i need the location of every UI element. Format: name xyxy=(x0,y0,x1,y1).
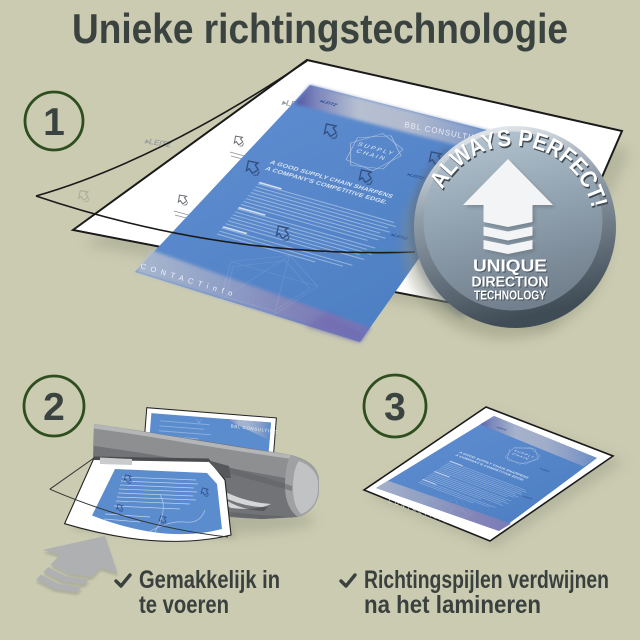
svg-text:1: 1 xyxy=(43,101,65,144)
svg-text:Richtingspijlen verdwijnen: Richtingspijlen verdwijnen xyxy=(364,566,609,594)
svg-text:UNIQUE: UNIQUE xyxy=(473,255,547,275)
svg-text:Gemakkelijk in: Gemakkelijk in xyxy=(139,566,280,594)
svg-text:3: 3 xyxy=(384,386,406,429)
svg-text:na het lamineren: na het lamineren xyxy=(364,591,541,619)
svg-text:Unieke richtingstechnologie: Unieke richtingstechnologie xyxy=(72,5,568,52)
svg-text:TECHNOLOGY: TECHNOLOGY xyxy=(474,288,546,303)
svg-text:te voeren: te voeren xyxy=(139,591,229,619)
svg-text:2: 2 xyxy=(43,386,65,429)
